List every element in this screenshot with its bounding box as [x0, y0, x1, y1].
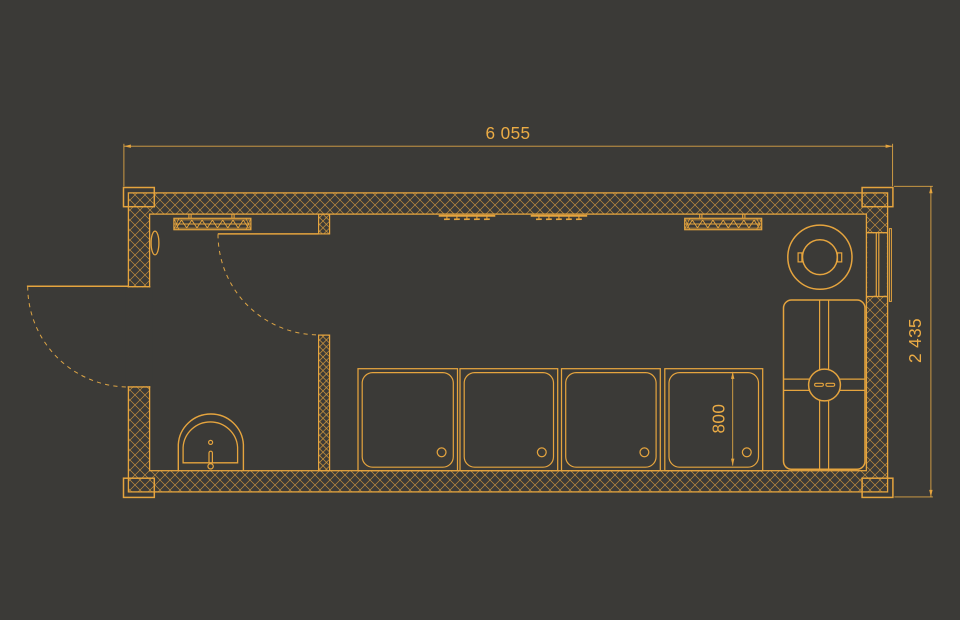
svg-text:2 435: 2 435: [905, 318, 925, 363]
svg-text:6 055: 6 055: [485, 123, 530, 143]
svg-text:800: 800: [708, 404, 728, 434]
